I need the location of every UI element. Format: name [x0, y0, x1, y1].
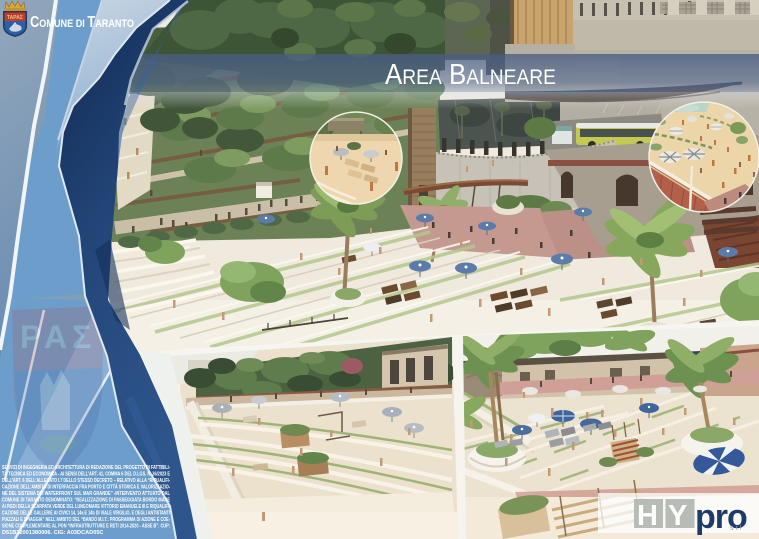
svg-text:SERVIZI DI INGEGNERIA ED ARCHI: SERVIZI DI INGEGNERIA ED ARCHITETTURA DI…	[2, 465, 170, 471]
svg-text:AI PIEDI DELLA SCARPATA VERDE: AI PIEDI DELLA SCARPATA VERDE DEL LUNGOM…	[2, 504, 170, 510]
svg-text:NE DEL SISTEMA DEI WATERFRONT: NE DEL SISTEMA DEI WATERFRONT SUL MAR GR…	[2, 491, 170, 497]
svg-text:D51B22001380006. CIG: A03DCAD0: D51B22001380006. CIG: A03DCAD05C	[2, 530, 103, 536]
svg-text:TAPAΣ: TAPAΣ	[7, 15, 23, 21]
svg-text:CAZIONE DELL'AMBITO DI INTERFA: CAZIONE DELL'AMBITO DI INTERFACCIA FRA P…	[2, 484, 170, 491]
svg-text:H: H	[637, 500, 658, 532]
svg-text:Y: Y	[668, 500, 687, 532]
svg-text:TÀ TECNICA ED ECONOMICA - AI S: TÀ TECNICA ED ECONOMICA - AI SENSI DELL'…	[2, 471, 170, 478]
svg-text:DELL'ART. 6 DELL'ALLEGATO I.7: DELL'ART. 6 DELL'ALLEGATO I.7 DELLO STES…	[2, 478, 170, 484]
svg-text:PAΣ: PAΣ	[20, 319, 96, 355]
svg-text:CAZIONE DELLE GALLERIE AI CIVI: CAZIONE DELLE GALLERIE AI CIVICI 14, 14a…	[2, 511, 170, 517]
svg-text:PIAZZALI E SPIAGGIA” NELL'AMBI: PIAZZALI E SPIAGGIA” NELL'AMBITO DEL “BA…	[2, 517, 170, 523]
svg-text:srl: srl	[730, 525, 743, 532]
svg-text:COMUNE DI TARANTO DENOMINATO:: COMUNE DI TARANTO DENOMINATO: “REALIZZAZ…	[2, 498, 170, 504]
svg-text:SIONE COMPLEMENTARE AL PON “IN: SIONE COMPLEMENTARE AL PON “INFRASTRUTTU…	[2, 524, 170, 530]
